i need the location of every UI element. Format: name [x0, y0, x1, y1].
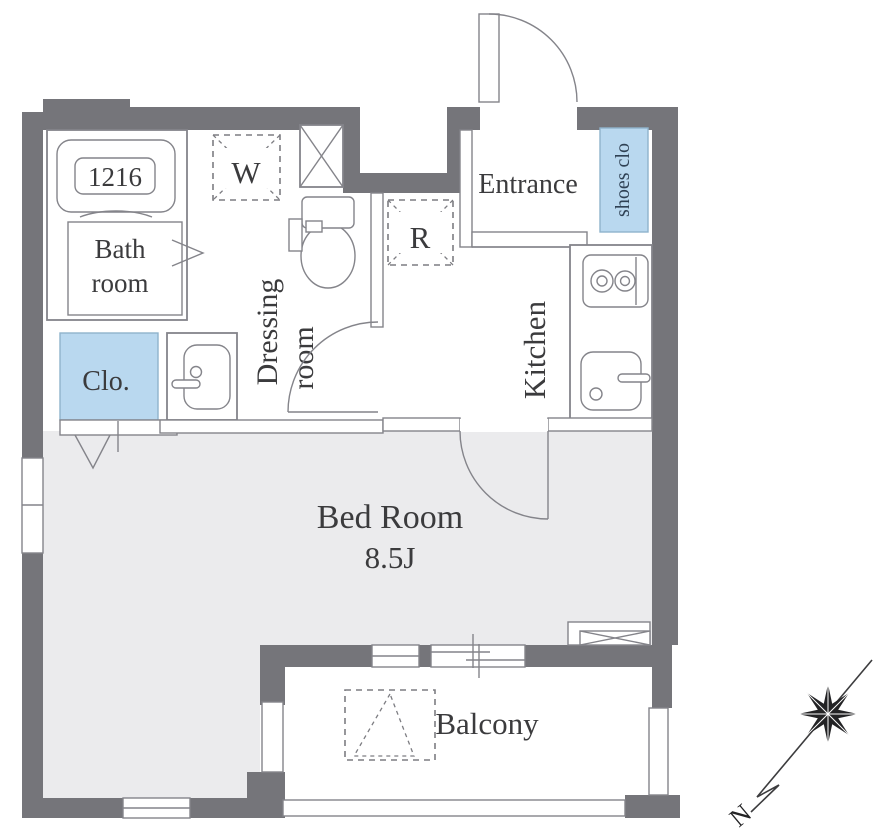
washer-space: W: [213, 135, 280, 200]
entrance-door-leaf: [479, 14, 499, 102]
balcony-label: Balcony: [435, 706, 539, 741]
dressing-label-line2: room: [287, 326, 320, 389]
sink-icon: [581, 352, 650, 410]
entrance-side-wall: [460, 130, 472, 247]
kitchen: Kitchen: [517, 245, 652, 425]
bathtub-label: 1216: [88, 162, 142, 192]
bathroom: 1216 Bath room: [47, 130, 203, 320]
balcony-left-panel: [262, 702, 283, 772]
balcony: Balcony: [262, 690, 668, 816]
left-wall-window: [22, 458, 43, 553]
shoes-closet: shoes clo: [600, 128, 648, 232]
refrigerator-label: R: [410, 220, 431, 255]
south-wall-window: [123, 798, 190, 818]
refrigerator-space: R: [388, 200, 453, 265]
kitchen-label: Kitchen: [517, 300, 552, 399]
entrance-label: Entrance: [478, 169, 578, 200]
stove-icon: [583, 255, 648, 307]
compass-arrow: [751, 785, 779, 812]
balcony-rail: [283, 800, 625, 816]
bathroom-label-line2: room: [92, 268, 149, 298]
dressing-label-line1: Dressing: [251, 279, 284, 386]
bay-window: [568, 622, 650, 645]
dressing-east-wall: [371, 193, 383, 327]
entrance: Entrance: [460, 14, 587, 247]
closet-label: Clo.: [82, 366, 129, 397]
entrance-opening: [480, 107, 577, 130]
pipe-space: [300, 125, 343, 187]
balcony-right-panel: [649, 708, 668, 795]
bedroom-size: 8.5J: [365, 540, 416, 575]
floorplan-image: 1216 Bath room W Clo.: [0, 0, 879, 838]
toilet: [289, 197, 355, 288]
washer-label: W: [231, 155, 261, 190]
washbasin: [167, 333, 237, 420]
compass-north-label: N: [724, 798, 757, 832]
bathroom-label-line1: Bath: [95, 234, 146, 264]
evacuation-hatch: [345, 690, 435, 760]
balcony-small-window: [372, 645, 419, 667]
shoes-closet-label: shoes clo: [612, 143, 634, 217]
floorplan-svg: 1216 Bath room W Clo.: [0, 0, 879, 838]
dressing-south-wall: [160, 420, 383, 433]
bedroom-name: Bed Room: [317, 499, 463, 536]
entrance-door-swing: [489, 14, 577, 102]
compass: N: [724, 660, 872, 833]
